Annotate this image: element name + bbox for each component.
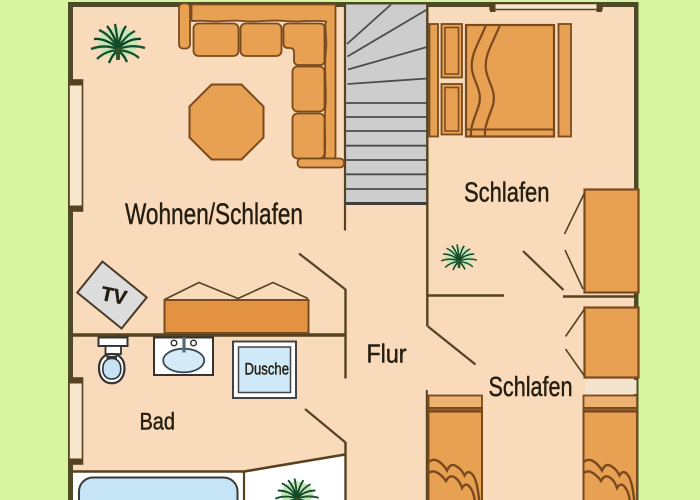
svg-text:Dusche: Dusche [245,361,290,379]
svg-text:Schlafen: Schlafen [489,371,573,402]
svg-text:Schlafen: Schlafen [464,177,550,208]
svg-text:Bad: Bad [140,409,176,436]
svg-text:Wohnen/Schlafen: Wohnen/Schlafen [125,198,303,231]
svg-text:Flur: Flur [367,339,407,369]
